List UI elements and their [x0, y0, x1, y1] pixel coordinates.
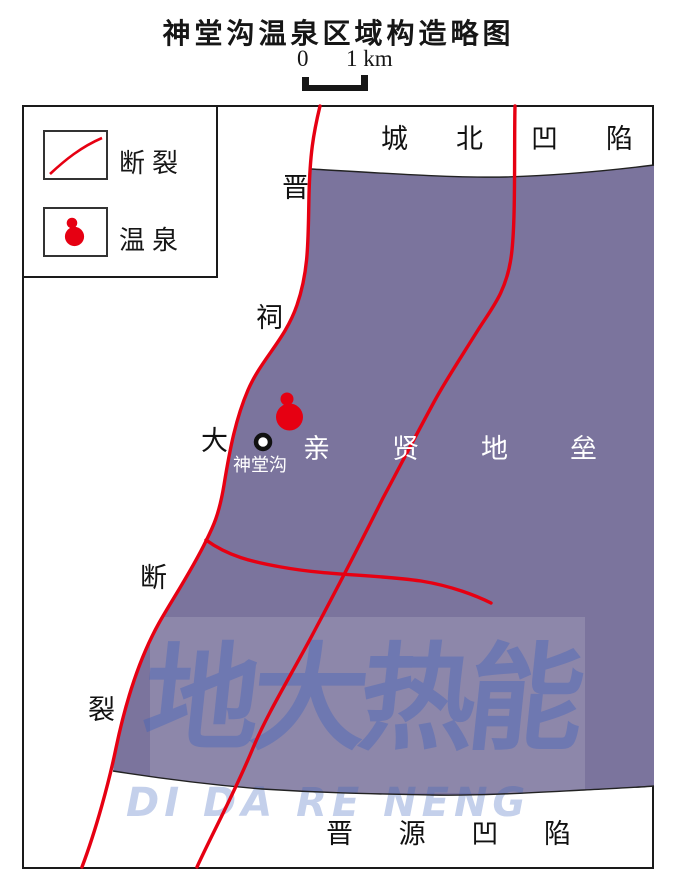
- jinci-fault-char-4: 断: [140, 565, 167, 592]
- watermark-cn-text: 地大热能: [137, 636, 620, 764]
- jinyuan-char: 陷: [544, 821, 571, 848]
- chengbei-char: 陷: [606, 126, 633, 153]
- legend: 断裂 温泉: [22, 105, 218, 278]
- chengbei-char: 城: [381, 126, 408, 153]
- legend-spring-label: 温泉: [119, 220, 185, 257]
- hot-spring-icon: [45, 209, 106, 255]
- jinyuan-char: 晋: [326, 821, 353, 848]
- horst-char: 贤: [392, 436, 419, 463]
- horst-char: 亲: [303, 436, 330, 463]
- geological-sketch-map-page: { "page": { "title": "神堂沟温泉区域构造略图" }, "s…: [0, 0, 677, 887]
- horst-char: 垒: [570, 436, 597, 463]
- jinci-fault-char-2: 祠: [256, 305, 283, 332]
- legend-fault-swatch: [43, 130, 108, 180]
- chengbei-char: 北: [456, 126, 483, 153]
- scale-zero-label: 0: [297, 46, 309, 72]
- legend-fault-label: 断裂: [119, 143, 185, 180]
- jinci-fault-char-1: 晋: [282, 175, 309, 202]
- label-chengbei-depression: 城 北 凹 陷: [381, 126, 633, 153]
- horst-char: 地: [481, 436, 508, 463]
- jinyuan-char: 源: [399, 821, 426, 848]
- spring-site-label: 神堂沟: [233, 456, 287, 474]
- label-jinyuan-depression: 晋 源 凹 陷: [326, 821, 571, 848]
- legend-spring-swatch: [43, 207, 108, 257]
- scale-unit-label: 1 km: [346, 46, 393, 72]
- jinci-fault-char-3: 大: [201, 428, 228, 455]
- jinci-fault-char-5: 裂: [88, 697, 115, 724]
- chengbei-char: 凹: [531, 126, 558, 153]
- jinyuan-char: 凹: [471, 821, 498, 848]
- fault-line-icon: [45, 132, 106, 178]
- scale-bar: [300, 73, 372, 93]
- page-title: 神堂沟温泉区域构造略图: [0, 12, 677, 52]
- label-qinxian-horst: 亲 贤 地 垒: [303, 436, 597, 463]
